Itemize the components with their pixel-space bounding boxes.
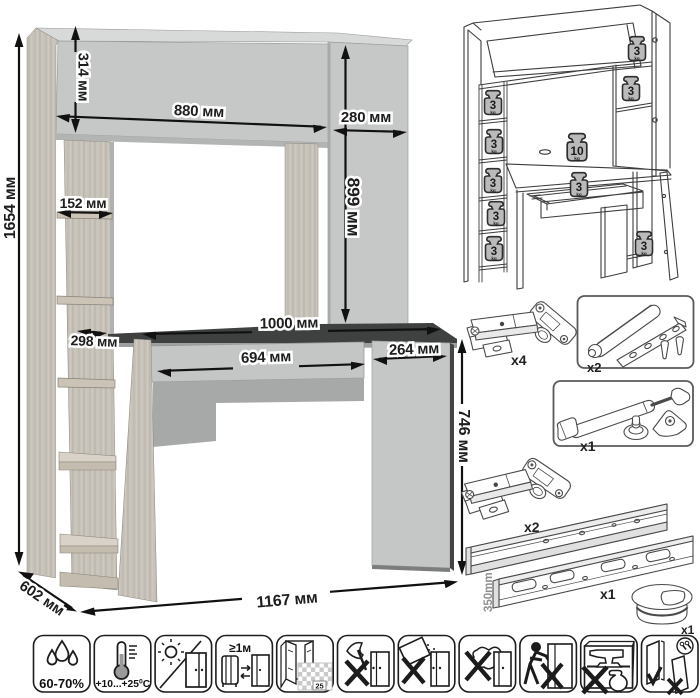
svg-text:694 мм: 694 мм [241,348,292,367]
svg-text:899 мм: 899 мм [344,178,364,237]
svg-text:60-70%: 60-70% [39,676,84,691]
svg-text:350mm: 350mm [483,572,495,612]
svg-text:+10...+250C: +10...+250C [96,679,151,691]
svg-text:x1: x1 [580,438,596,454]
svg-text:1000 мм: 1000 мм [260,314,319,332]
svg-text:25: 25 [315,682,323,691]
svg-text:280 мм: 280 мм [341,109,391,126]
svg-text:298 мм: 298 мм [70,332,117,350]
svg-text:≥1м: ≥1м [229,641,251,655]
svg-text:264 мм: 264 мм [389,340,440,359]
svg-text:x1: x1 [600,586,616,602]
svg-text:152 мм: 152 мм [60,195,107,211]
svg-text:880 мм: 880 мм [174,102,225,121]
svg-text:x2: x2 [587,360,601,375]
svg-text:x4: x4 [511,352,527,368]
svg-text:314 мм: 314 мм [75,53,91,101]
svg-text:746 мм: 746 мм [455,409,472,463]
svg-text:1654 мм: 1654 мм [2,177,19,239]
